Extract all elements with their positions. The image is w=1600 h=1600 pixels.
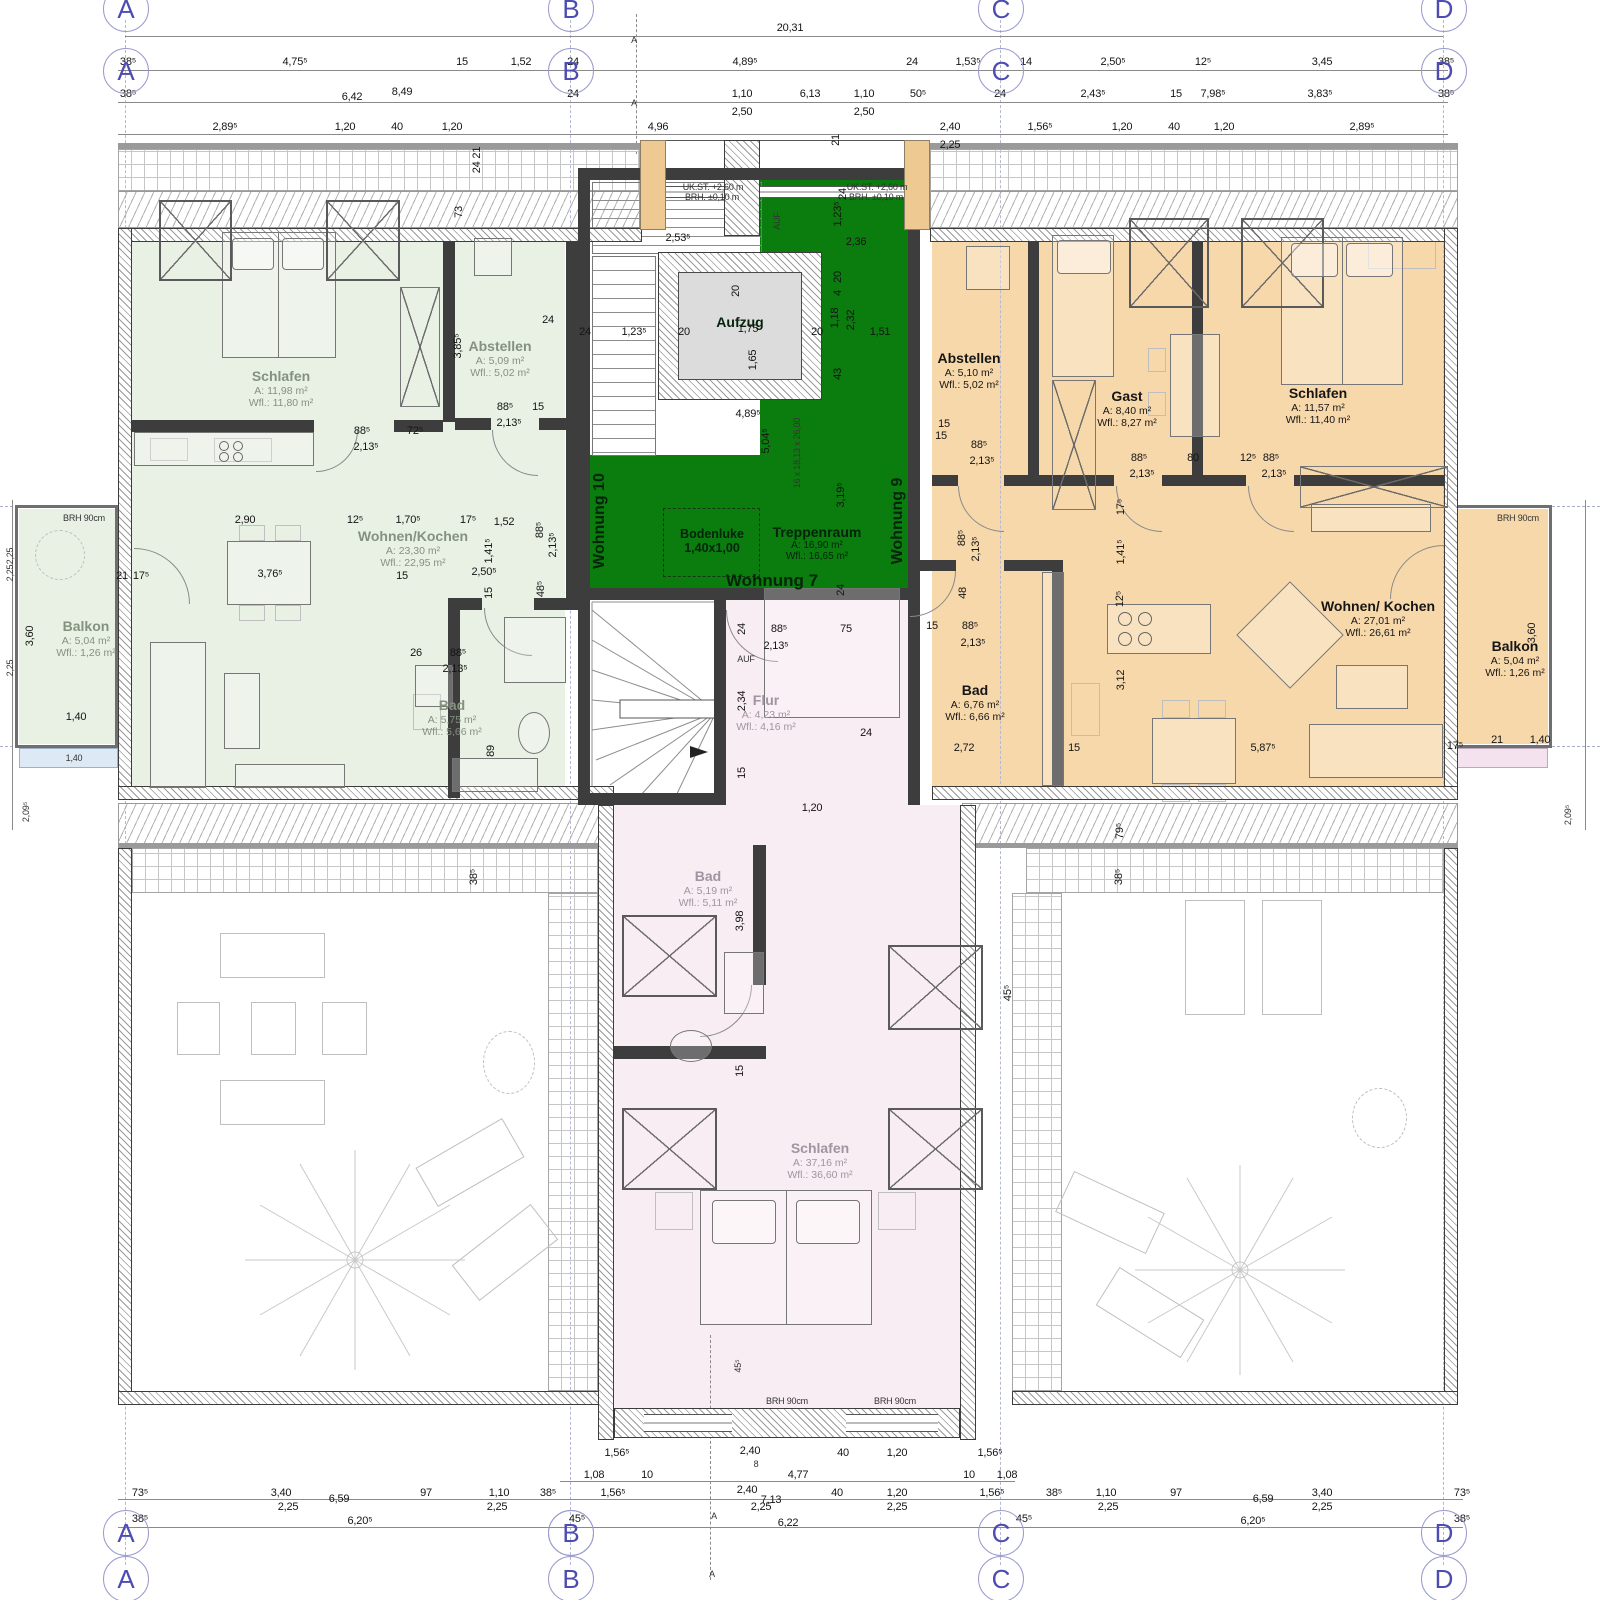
dim-label: 40 <box>1168 121 1180 133</box>
room-name: Schlafen <box>787 1140 852 1157</box>
chair <box>239 525 265 541</box>
dim-label: 50⁵ <box>910 88 926 100</box>
dim-label: 43 <box>832 368 844 380</box>
dim-label: 15 <box>938 418 950 430</box>
dim-label: 24 <box>542 314 554 326</box>
room-label-wohnen-left: Wohnen/Kochen A: 23,30 m² Wfl.: 22,95 m² <box>358 528 468 570</box>
dim-label: 4,89⁵ <box>733 56 758 68</box>
dim-label: 10 <box>641 1469 653 1481</box>
dim-label: 1,20 <box>887 1447 908 1459</box>
room-label-schlafen-bottom: Schlafen A: 37,16 m² Wfl.: 36,60 m² <box>787 1140 852 1182</box>
dim-label: 2,50⁵ <box>1101 56 1126 68</box>
dim-label: 1,65 <box>747 350 759 371</box>
dim-label: 40 <box>837 1447 849 1459</box>
insulation-block <box>640 140 666 230</box>
axis-letter: C <box>992 56 1011 87</box>
dim-label: 5,04⁵ <box>760 429 772 454</box>
room-wfl: Wfl.: 22,95 m² <box>358 557 468 570</box>
axis-letter: A <box>117 1518 134 1549</box>
core-wall-top <box>578 168 920 180</box>
bathtub-left <box>452 758 538 792</box>
terrace-lounger <box>1185 900 1245 1015</box>
dim-label: 3,76⁵ <box>258 568 283 580</box>
dim-label: 8 <box>754 1459 759 1469</box>
burner <box>219 441 229 451</box>
dim-label: 1,23⁵ <box>832 202 844 227</box>
room-name: Bad <box>679 868 738 885</box>
dim-label: 2,40 <box>737 1484 758 1496</box>
pillow <box>1291 243 1338 277</box>
dim-label: 1,52 <box>494 516 515 528</box>
floor-plan-sheet: A A B B C C D D A A B B C C D D <box>0 0 1600 1600</box>
room-wfl: Wfl.: 5,02 m² <box>468 367 531 380</box>
dim-label: 21 <box>1491 734 1503 746</box>
dim-label: 1,41⁵ <box>483 539 495 564</box>
axis-letter: C <box>992 1518 1011 1549</box>
dim-label: 88⁵ <box>771 623 787 635</box>
dim-label: 88⁵ <box>534 522 546 538</box>
dim-label: 2,25 <box>1098 1501 1119 1513</box>
dim-label: 2,09⁵ <box>1563 805 1573 825</box>
dim-label: 3,83⁵ <box>1308 88 1333 100</box>
pillow <box>1346 243 1393 277</box>
room-wfl: Wfl.: 11,40 m² <box>1286 414 1351 427</box>
dim-label: 1,52 <box>511 56 532 68</box>
dim-label: 2,40 <box>740 1445 761 1457</box>
room-wfl: Wfl.: 5,11 m² <box>679 897 738 910</box>
wardrobe <box>1300 466 1448 508</box>
dim-label: 20,31 <box>777 22 804 34</box>
chair <box>239 605 265 621</box>
dim-label: 24 <box>736 623 748 635</box>
axis-letter: C <box>992 1564 1011 1595</box>
dim-label: 1,10 <box>1096 1487 1117 1499</box>
room-wfl: Wfl.: 16,65 m² <box>773 551 862 562</box>
dim-label: 6,42 <box>342 91 363 103</box>
lower-roof-grid <box>1026 848 1444 893</box>
dim-label: 7,98⁵ <box>1201 88 1226 100</box>
axis-marker-b-top-2: B <box>548 48 594 94</box>
dim-label: 2,90 <box>235 514 256 526</box>
terrace-umbrella <box>1130 1160 1350 1380</box>
axis-marker-d-top-2: D <box>1421 48 1467 94</box>
dim-label: 2,13⁵ <box>1262 468 1287 480</box>
room-area: A: 27,01 m² <box>1321 615 1435 628</box>
dim-label: 2,25 <box>751 1501 772 1513</box>
dim-label: 26 <box>410 647 422 659</box>
room-label-bad-left: Bad A: 5,75 m² Wfl.: 5,66 m² <box>422 697 482 739</box>
terrace-umbrella <box>240 1145 470 1375</box>
dim-label: 3,98 <box>734 911 746 932</box>
room-wfl: Wfl.: 11,80 m² <box>249 397 314 410</box>
dim-label: 88⁵ <box>450 647 466 659</box>
ref-line <box>1552 746 1600 747</box>
room-name: Treppenraum <box>773 524 862 540</box>
dim-label: BRH. ±0,10 m <box>849 192 903 202</box>
partition <box>920 560 956 571</box>
stair-flight-left <box>592 256 656 456</box>
axis-letter: B <box>562 0 579 25</box>
dormer-window <box>622 915 717 997</box>
bed-divider <box>1342 237 1343 385</box>
dim-label: 15 <box>483 587 495 599</box>
partition <box>443 242 455 422</box>
terrace-table <box>220 933 325 978</box>
room-name: Schlafen <box>1286 385 1351 402</box>
dim-label: 2,13⁵ <box>961 637 986 649</box>
dim-label: 73⁵ <box>132 1487 148 1499</box>
lower-roof-grid <box>1012 893 1062 1391</box>
core-wall-right <box>908 168 920 605</box>
dim-label: 2,25 <box>940 139 961 151</box>
kitchen-counter-right <box>1042 572 1064 786</box>
partition <box>455 418 491 430</box>
dim-label: 2,43⁵ <box>1081 88 1106 100</box>
dim-label: 88⁵ <box>1263 452 1279 464</box>
dim-label: 2,53⁵ <box>666 232 691 244</box>
lower-wall-bottom-right <box>1012 1391 1458 1405</box>
dim-label: 2,25 <box>5 548 15 565</box>
axis-marker-b-top-1: B <box>548 0 594 32</box>
dim-label: 2,13⁵ <box>764 640 789 652</box>
ridge-bar <box>118 143 640 149</box>
dim-label: 16 x 18,13 x 26,00 <box>792 418 802 488</box>
dim-label: 45⁵ <box>733 1359 743 1372</box>
dim-label: 97 <box>420 1487 432 1499</box>
axis-marker-c-top-2: C <box>978 48 1024 94</box>
axis-marker-c-bot-2: C <box>978 1556 1024 1600</box>
dim-label: 6,20⁵ <box>348 1515 373 1527</box>
dim-label: UK.ST. +2,60 m <box>847 182 907 192</box>
ref-line <box>1552 506 1600 507</box>
dim-label: 10 <box>963 1469 975 1481</box>
dim-label: 1,40 <box>1530 734 1551 746</box>
burner <box>219 452 229 462</box>
room-label-wohnen-right: Wohnen/ Kochen A: 27,01 m² Wfl.: 26,61 m… <box>1321 598 1435 640</box>
axis-marker-d-bot-2: D <box>1421 1556 1467 1600</box>
dim-label: 1,51 <box>870 326 891 338</box>
burner <box>1118 632 1132 646</box>
dim-label: 2,13⁵ <box>970 455 995 467</box>
dim-label: 38⁵ <box>468 869 480 885</box>
dim-label: 2,34 <box>736 691 748 712</box>
room-label-balkon-right: Balkon A: 5,04 m² Wfl.: 1,26 m² <box>1485 638 1545 680</box>
wardrobe <box>1052 380 1096 510</box>
dim-label: 12⁵ <box>1240 452 1256 464</box>
room-wfl: Wfl.: 36,60 m² <box>787 1169 852 1182</box>
terrace-plant <box>483 1031 535 1094</box>
room-area: A: 37,16 m² <box>787 1157 852 1170</box>
dim-label: 1,56⁵ <box>980 1487 1005 1499</box>
dim-label: 24 <box>579 326 591 338</box>
axis-marker-d-top-1: D <box>1421 0 1467 32</box>
wohnung-9-label: Wohnung 9 <box>889 478 907 565</box>
room-area: A: 16,90 m² <box>773 540 862 551</box>
dim-chain <box>125 36 1443 37</box>
sofa-left <box>150 642 206 788</box>
room-label-abstellen-right: Abstellen A: 5,10 m² Wfl.: 5,02 m² <box>937 350 1000 392</box>
room-name: Bad <box>422 697 482 714</box>
dim-label: 3,40 <box>1312 1487 1333 1499</box>
dim-label: 3,60 <box>1526 623 1538 644</box>
room-area: A: 5,75 m² <box>422 714 482 727</box>
chair <box>1148 348 1166 372</box>
shower-left <box>504 617 566 683</box>
dim-label: 1,10 <box>854 88 875 100</box>
axis-marker-a-bot-1: A <box>103 1510 149 1556</box>
wohnung-10-label: Wohnung 10 <box>591 473 609 569</box>
dim-label: 5,87⁵ <box>1251 742 1276 754</box>
dim-label: 88⁵ <box>354 425 370 437</box>
dim-label: 48 <box>957 587 969 599</box>
dim-chain-v <box>1585 500 1586 830</box>
bodenluke-label: Bodenluke 1,40x1,00 <box>680 527 744 555</box>
core-wall-left <box>578 168 590 600</box>
axis-letter: C <box>992 0 1011 25</box>
washbasin-bottom <box>724 952 764 1014</box>
nightstand <box>878 1192 916 1230</box>
pink-wall-left-strip <box>598 805 614 1440</box>
dim-label: 15 <box>396 570 408 582</box>
dim-label: 4,77 <box>788 1469 809 1481</box>
axis-marker-b-bot-2: B <box>548 1556 594 1600</box>
coffee-table-left <box>224 673 260 749</box>
stair-room-wall-left <box>578 600 590 805</box>
room-area: A: 8,40 m² <box>1097 405 1157 418</box>
lower-wall-right <box>1444 848 1458 1405</box>
pillow <box>1057 240 1111 274</box>
dim-label: 1,56⁵ <box>605 1447 630 1459</box>
chair <box>1198 700 1226 718</box>
desk-gast <box>1170 334 1220 437</box>
dim-label: 4,75⁵ <box>283 56 308 68</box>
dim-label: 1,20 <box>442 121 463 133</box>
lower-wall-left <box>118 848 132 1405</box>
dim-label: 45⁵ <box>1002 985 1014 1001</box>
dim-label: 8,49 <box>392 86 413 98</box>
dim-label: 24 <box>835 584 847 596</box>
chair <box>275 605 301 621</box>
axis-marker-b-bot-1b: B <box>548 1510 594 1556</box>
axis-letter: B <box>562 1564 579 1595</box>
axis-marker-a-top-2: A <box>103 48 149 94</box>
dim-label: 15 <box>532 401 544 413</box>
axis-letter: D <box>1435 1564 1454 1595</box>
sofa-right <box>1309 724 1443 778</box>
dim-label: 6,20⁵ <box>1241 1515 1266 1527</box>
room-name: Abstellen <box>468 338 531 355</box>
dim-label: 6,22 <box>778 1517 799 1529</box>
dim-label: 2,25 <box>1312 1501 1333 1513</box>
dim-label: 1,56⁵ <box>978 1447 1003 1459</box>
axis-letter: B <box>562 56 579 87</box>
axis-letter: B <box>562 1518 579 1549</box>
chair <box>1162 700 1190 718</box>
dim-label: 12⁵ <box>347 514 363 526</box>
axis-letter: D <box>1435 1518 1454 1549</box>
dim-label: 15 <box>456 56 468 68</box>
treppenraum-label: Treppenraum A: 16,90 m² Wfl.: 16,65 m² <box>773 524 862 562</box>
axis-marker-d-bot-1: D <box>1421 1510 1467 1556</box>
lower-roof-grid <box>548 893 598 1391</box>
burner <box>1138 612 1152 626</box>
burner <box>233 441 243 451</box>
room-label-balkon-left: Balkon A: 5,04 m² Wfl.: 1,26 m² <box>56 618 116 660</box>
dim-label: 24 <box>906 56 918 68</box>
dim-label: 2,13⁵ <box>970 537 982 562</box>
room-wfl: Wfl.: 5,02 m² <box>937 379 1000 392</box>
room-wfl: Wfl.: 26,61 m² <box>1321 627 1435 640</box>
room-area: A: 5,19 m² <box>679 885 738 898</box>
dim-label: 2,25 <box>278 1501 299 1513</box>
room-name: Abstellen <box>937 350 1000 367</box>
dim-label: 3,40 <box>271 1487 292 1499</box>
dim-label: 38⁵ <box>1046 1487 1062 1499</box>
dim-label: 15 <box>935 430 947 442</box>
dim-label: 3,45 <box>1312 56 1333 68</box>
dim-label: 2,50 <box>854 106 875 118</box>
room-wfl: Wfl.: 8,27 m² <box>1097 417 1157 430</box>
dim-label: 4,89⁵ <box>736 408 761 420</box>
dim-label: 2,25 <box>5 565 15 582</box>
terrace-chair <box>251 1002 296 1055</box>
dim-label: 1,75 <box>738 323 759 335</box>
pink-window <box>846 1414 938 1432</box>
dim-label: 2,25 <box>487 1501 508 1513</box>
dim-label: 2,72 <box>954 742 975 754</box>
dim-label: 79⁵ <box>1114 823 1126 839</box>
wohnung-7-label: Wohnung 7 <box>726 571 818 591</box>
partition <box>932 475 958 486</box>
nightstand <box>655 1192 693 1230</box>
terrace-chair <box>322 1002 367 1055</box>
dim-label: 2,40 <box>940 121 961 133</box>
room-wfl: Wfl.: 5,66 m² <box>422 726 482 739</box>
eaves-bar-left <box>118 843 612 848</box>
room-label-bad-bottom: Bad A: 5,19 m² Wfl.: 5,11 m² <box>679 868 738 910</box>
dim-label: A <box>631 35 637 45</box>
wardrobe <box>400 287 440 407</box>
dim-label: BRH 90cm <box>1497 513 1539 523</box>
wc-left <box>518 712 550 754</box>
dim-label: 24 <box>860 727 872 739</box>
dim-label: 3,85⁵ <box>452 334 464 359</box>
dim-label: 40 <box>831 1487 843 1499</box>
partition <box>1162 475 1246 486</box>
dim-label: 73 <box>453 206 465 218</box>
terrace-chair <box>177 1002 220 1055</box>
dim-label: 72⁵ <box>407 425 423 437</box>
dim-label: 1,40 <box>66 711 87 723</box>
room-wfl: Wfl.: 4,16 m² <box>736 721 796 734</box>
dim-label: 3,19⁵ <box>835 483 847 508</box>
room-label-schlafen-left: Schlafen A: 11,98 m² Wfl.: 11,80 m² <box>249 368 314 410</box>
dim-label: 88⁵ <box>971 439 987 451</box>
outer-wall-right <box>1444 228 1458 800</box>
dim-label: 2,50 <box>732 106 753 118</box>
roof-window <box>159 200 232 281</box>
dim-label: 2,09⁵ <box>21 802 31 822</box>
outer-wall-bottom-leftwing <box>118 786 614 800</box>
dim-label: 80 <box>1187 452 1199 464</box>
pillow <box>232 238 274 270</box>
terrace-lounger <box>1262 900 1322 1015</box>
dim-label: 73⁵ <box>1454 1487 1470 1499</box>
dim-label: 17⁵ <box>460 514 476 526</box>
dim-label: BRH 90cm <box>63 513 105 523</box>
room-name: Wohnen/Kochen <box>358 528 468 545</box>
flur-right-wall <box>908 605 920 805</box>
dim-label: 1,53⁵ <box>956 56 981 68</box>
room-label-bad-right: Bad A: 6,76 m² Wfl.: 6,66 m² <box>945 682 1005 724</box>
room-wfl: Wfl.: 1,26 m² <box>1485 667 1545 680</box>
room-name: Wohnen/ Kochen <box>1321 598 1435 615</box>
lower-wall-bottom-left <box>118 1391 600 1405</box>
dim-label: 2,13⁵ <box>497 417 522 429</box>
sideboard-right <box>1311 504 1431 532</box>
dim-label: 17⁵ <box>1447 740 1463 752</box>
eaves-band-right <box>962 803 1458 845</box>
axis-letter: A <box>117 1564 134 1595</box>
storage-shelf <box>474 238 512 276</box>
dim-chain <box>118 70 1448 71</box>
room-label-schlafen-right: Schlafen A: 11,57 m² Wfl.: 11,40 m² <box>1286 385 1351 427</box>
dim-label: 2,13⁵ <box>547 533 559 558</box>
dim-label: UK.ST. +2,60 m <box>683 182 743 192</box>
dim-label: 15 <box>736 767 748 779</box>
dim-label: 15 <box>1068 742 1080 754</box>
room-label-abstellen-left: Abstellen A: 5,09 m² Wfl.: 5,02 m² <box>468 338 531 380</box>
dim-label: 2,13⁵ <box>1130 468 1155 480</box>
bodenluke-size: 1,40x1,00 <box>680 541 744 555</box>
dim-label: 1,08 <box>584 1469 605 1481</box>
dim-label: 21 <box>116 570 128 582</box>
partition <box>534 598 578 610</box>
balcony-table-set <box>35 530 85 580</box>
room-wfl: Wfl.: 6,66 m² <box>945 711 1005 724</box>
dim-label: 4 <box>832 290 844 296</box>
bodenluke-name: Bodenluke <box>680 527 744 541</box>
axis-letter: A <box>117 56 134 87</box>
dim-label: 1,10 <box>489 1487 510 1499</box>
dim-label: A <box>709 1569 715 1579</box>
room-area: A: 11,57 m² <box>1286 402 1351 415</box>
coffee-table-right <box>1336 665 1408 709</box>
dim-label: 1,56⁵ <box>1028 121 1053 133</box>
axis-marker-a-top-1: A <box>103 0 149 32</box>
dim-label: 15 <box>926 620 938 632</box>
insulation-block <box>904 140 930 230</box>
pink-window <box>644 1414 732 1432</box>
burner <box>1138 632 1152 646</box>
dim-label: 1,20 <box>802 802 823 814</box>
dim-label: A <box>631 98 637 108</box>
dim-label: 6,13 <box>800 88 821 100</box>
room-name: Bad <box>945 682 1005 699</box>
terrace-bench <box>220 1080 325 1125</box>
dim-label: 20 <box>730 285 742 297</box>
dim-label: 2,32 <box>845 310 857 331</box>
bed-divider <box>786 1190 787 1325</box>
dim-label: 38⁵ <box>1113 869 1125 885</box>
dim-chain <box>118 134 1448 135</box>
dim-label: 2,25 <box>5 660 15 677</box>
axis-marker-c-top-1: C <box>978 0 1024 32</box>
dim-label: 17⁵ <box>1115 499 1127 515</box>
bed-divider <box>278 232 279 358</box>
room-area: A: 6,76 m² <box>945 699 1005 712</box>
stair-room-wall-bottom <box>578 793 726 805</box>
